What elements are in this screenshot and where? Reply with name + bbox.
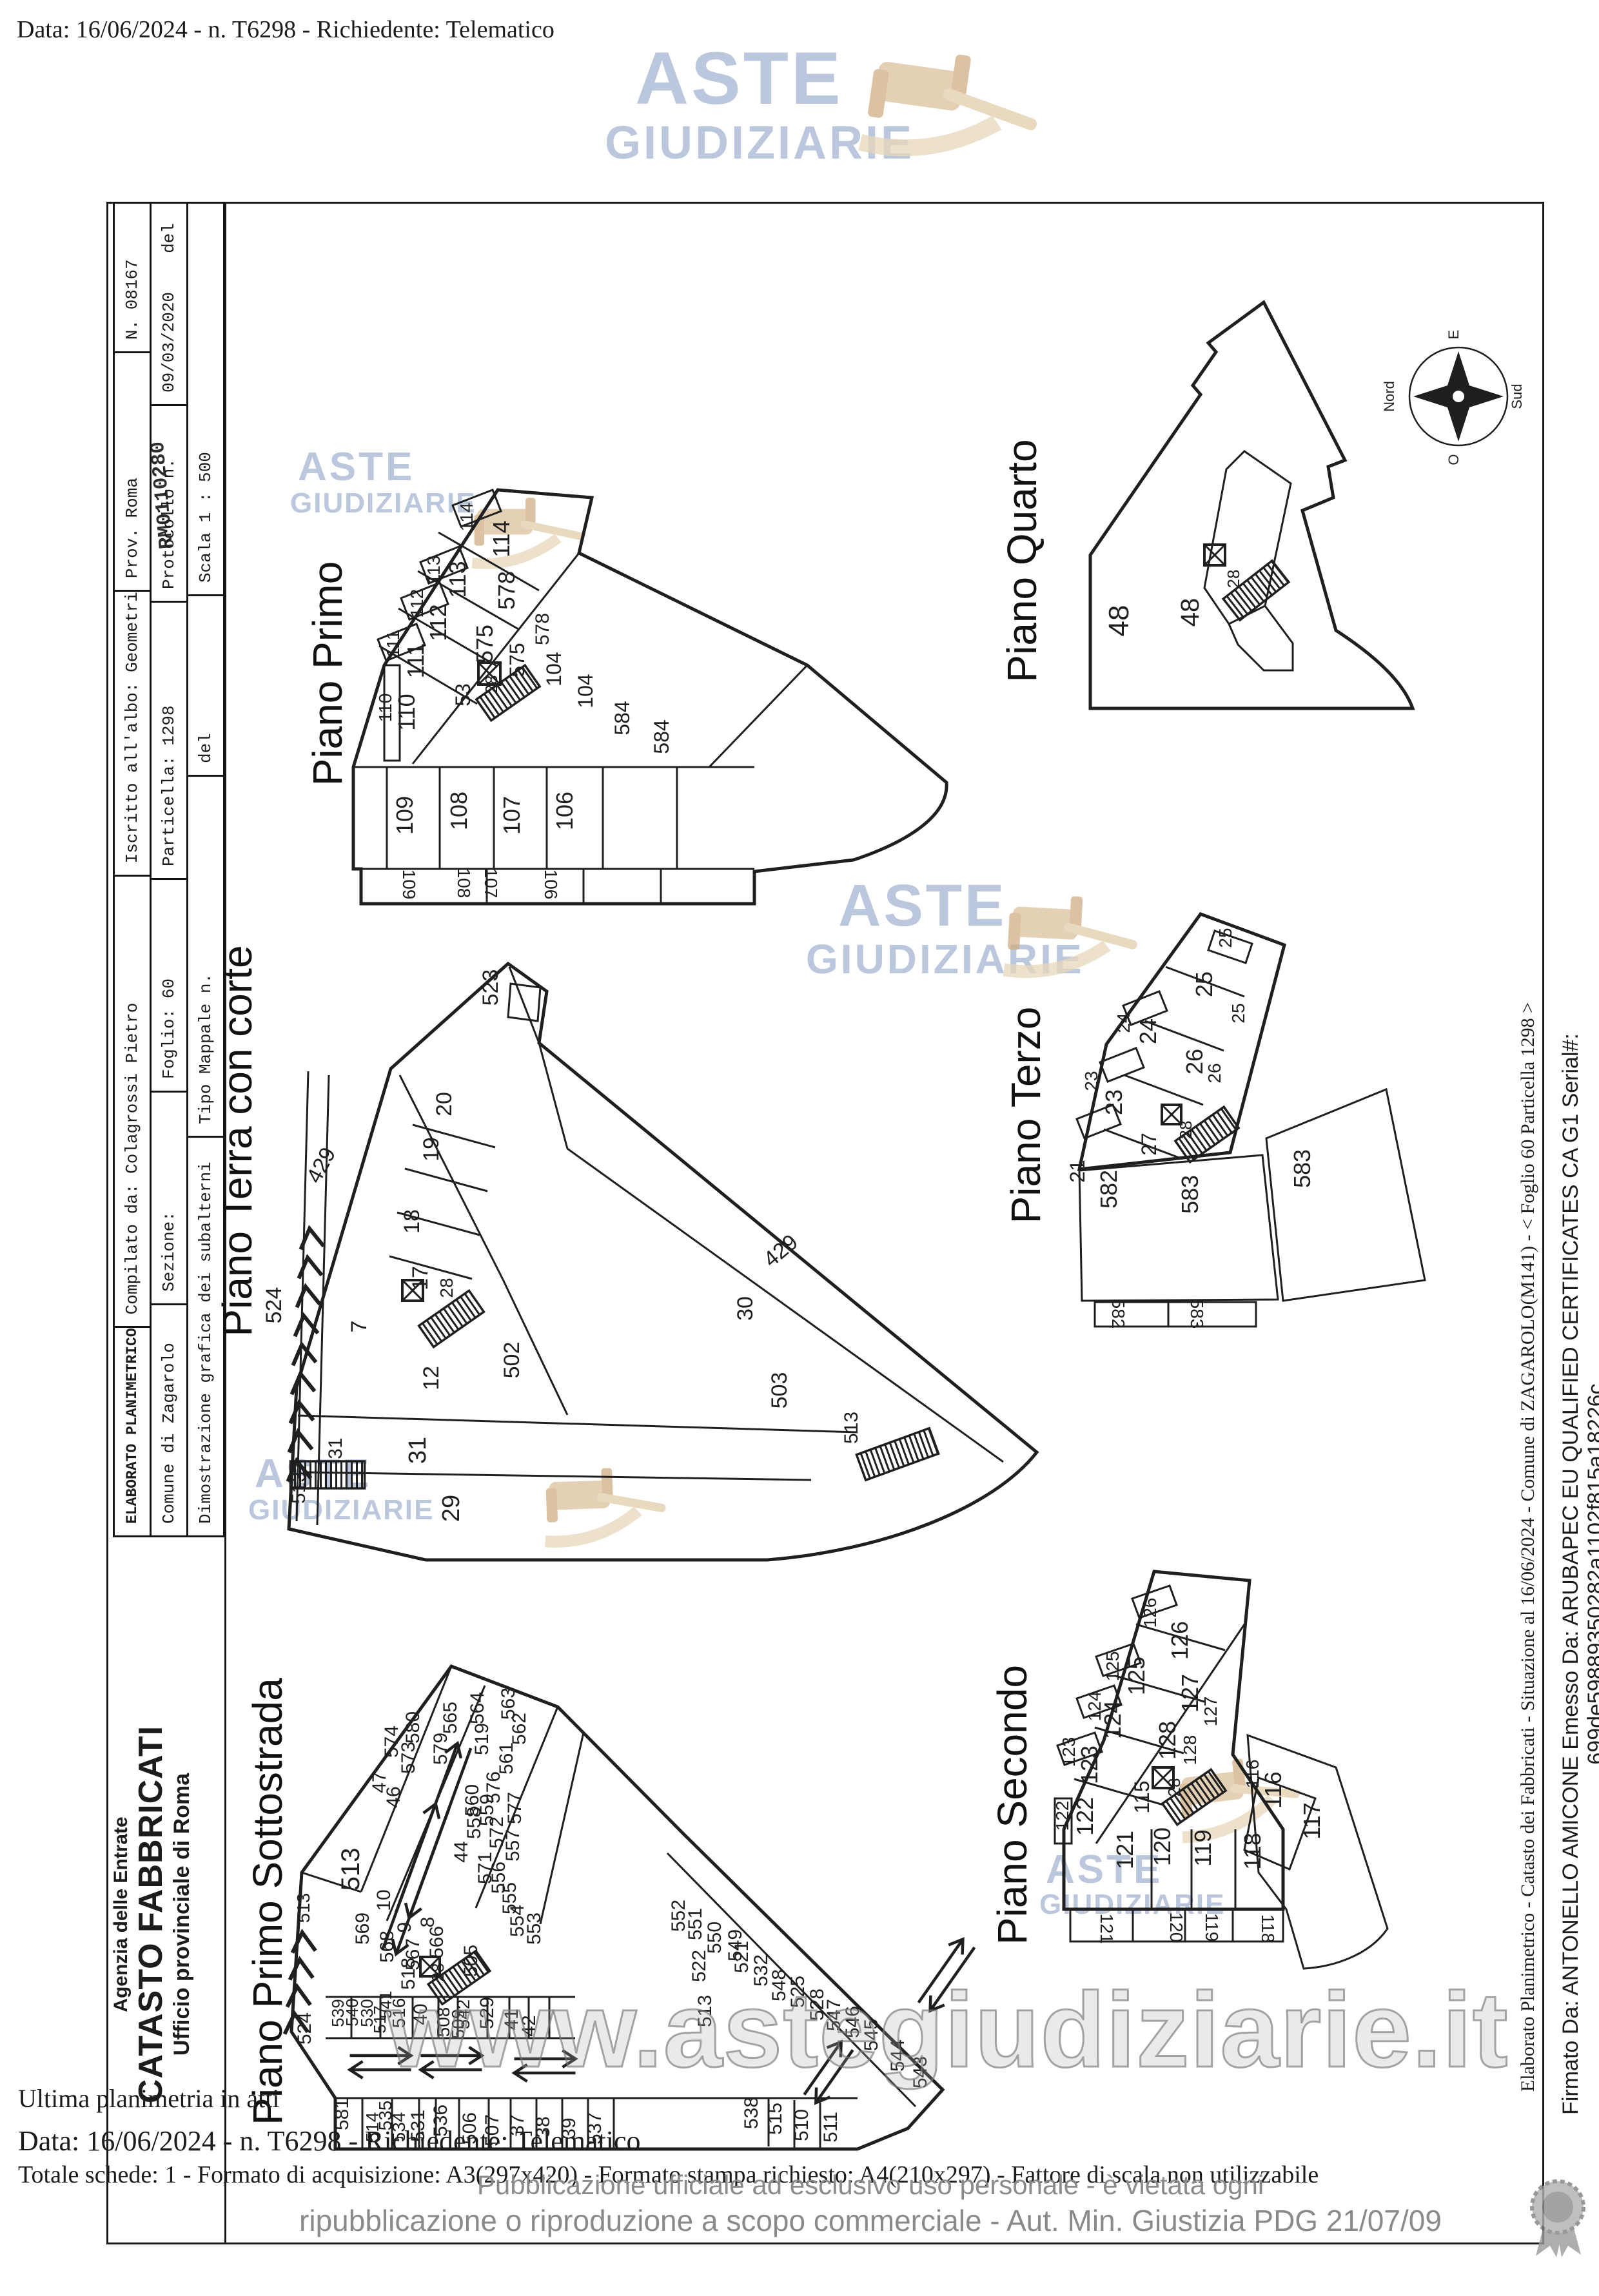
room-label: 513: [841, 1412, 862, 1444]
room-label: 128: [1180, 1735, 1200, 1766]
room-label: 23: [1081, 1071, 1101, 1091]
room-label: 113: [424, 556, 444, 585]
room-label: 23: [1101, 1089, 1127, 1115]
room-label: 28: [437, 1278, 456, 1298]
room-label: 564: [467, 1692, 488, 1724]
room-label: 111: [402, 643, 429, 679]
compass-label: Nord: [1381, 381, 1397, 412]
room-label: 551: [685, 1908, 706, 1940]
room-label: 127: [1201, 1697, 1221, 1727]
room-label: 17: [408, 1266, 433, 1290]
room-label: 111: [383, 630, 403, 658]
room-label: 513: [293, 1893, 313, 1923]
plan-title-piano-terzo: Piano Terzo: [1003, 1007, 1049, 1224]
room-label: 53: [451, 683, 475, 706]
room-label: 583: [1177, 1175, 1203, 1214]
room-label: 582: [1108, 1299, 1128, 1329]
room-label: 565: [440, 1702, 461, 1734]
room-label: 429: [302, 1143, 340, 1187]
room-label: 578: [532, 613, 553, 645]
room-label: 109: [391, 796, 418, 835]
room-label: 511: [820, 2112, 841, 2143]
room-label: 550: [704, 1921, 725, 1954]
room-label: 106: [551, 792, 578, 830]
room-label: 25: [1228, 1003, 1248, 1023]
room-label: 575: [471, 625, 498, 663]
room-label: 18: [400, 1209, 424, 1234]
room-label: 584: [650, 719, 673, 754]
room-label: 123: [1076, 1746, 1103, 1784]
compass-label: E: [1446, 330, 1462, 340]
floor-plans-canvas: 1141141131135781121125785755751111111041…: [0, 0, 1599, 2262]
room-label: 124: [1099, 1700, 1126, 1739]
room-label: 116: [1260, 1771, 1286, 1808]
room-label: 125: [1103, 1651, 1123, 1682]
plan-title-piano-quarto: Piano Quarto: [999, 439, 1045, 682]
room-label: 579: [430, 1733, 451, 1765]
room-label: 562: [509, 1713, 530, 1745]
room-label: 113: [444, 561, 471, 598]
room-label: 106: [541, 870, 561, 900]
side-signature-line: Firmato Da: ANTONELLO AMICONE Emesso Da:…: [1558, 852, 1591, 2296]
room-label: 28: [1176, 1121, 1195, 1140]
room-label: 27: [1137, 1133, 1161, 1156]
room-label: 558: [464, 1807, 485, 1839]
room-label: 44: [451, 1841, 472, 1862]
room-label: 121: [1112, 1831, 1138, 1869]
room-label: 20: [432, 1092, 456, 1116]
room-label: 119: [1190, 1829, 1216, 1866]
publication-notice-line1: Pubblicazione ufficiale ad esclusivo uso…: [193, 2170, 1547, 2201]
room-label: 573: [398, 1742, 419, 1774]
room-label: 553: [524, 1912, 545, 1945]
room-label: 584: [611, 701, 634, 735]
room-label: 25: [1191, 971, 1217, 997]
room-label: 122: [1052, 1801, 1072, 1831]
room-label: 122: [1072, 1797, 1098, 1836]
room-label: 515: [765, 2103, 786, 2135]
room-label: 117: [1299, 1802, 1325, 1839]
room-label: 24: [1135, 1018, 1161, 1044]
floorplan-piano-terzo: 252525242426262323272821582583583582583P…: [1003, 914, 1425, 1328]
room-label: 538: [741, 2097, 762, 2129]
room-label: 121: [1097, 1914, 1117, 1944]
room-label: 128: [1154, 1721, 1181, 1760]
room-label: 104: [574, 674, 597, 708]
room-label: 25: [1215, 928, 1235, 948]
room-label: 126: [1166, 1621, 1193, 1660]
scanned-cadastral-document: { "header": "Data: 16/06/2024 - n. T6298…: [0, 0, 1599, 2262]
room-label: 523: [478, 969, 503, 1006]
room-label: 503: [767, 1372, 792, 1409]
compass-label: O: [1446, 454, 1462, 465]
room-label: 107: [481, 868, 501, 899]
room-label: 114: [488, 520, 515, 557]
room-label: 28: [482, 676, 501, 694]
room-label: 429: [759, 1230, 803, 1272]
room-label: 575: [505, 643, 529, 677]
room-label: 519: [471, 1723, 493, 1755]
compass-label: Sud: [1509, 384, 1525, 409]
room-label: 502: [500, 1342, 524, 1379]
room-label: 30: [733, 1296, 758, 1321]
room-label: 582: [1095, 1170, 1122, 1209]
room-label: 110: [393, 694, 420, 730]
floorplan-piano-terra-con-corte: 5234294292019181728712502305035135133131…: [214, 945, 1037, 1560]
floorplan-piano-secondo: 1261261251251271271241241231231281281221…: [989, 1571, 1388, 1969]
plan-title-piano-secondo: Piano Secondo: [989, 1665, 1035, 1945]
room-label: 566: [426, 1926, 447, 1958]
room-label: 125: [1123, 1657, 1150, 1695]
publication-notice-line2: ripubblicazione o riproduzione a scopo c…: [193, 2203, 1547, 2238]
room-label: 118: [1239, 1833, 1266, 1869]
room-label: 120: [1149, 1827, 1175, 1866]
room-label: 28: [1224, 570, 1243, 589]
room-label: 31: [325, 1437, 346, 1459]
room-label: 569: [352, 1912, 373, 1945]
room-label: 7: [347, 1321, 371, 1333]
room-label: 48: [1176, 598, 1204, 627]
room-label: 583: [1289, 1149, 1315, 1188]
room-label: 26: [1204, 1063, 1224, 1083]
room-label: 26: [1181, 1049, 1208, 1075]
room-label: 118: [1258, 1914, 1278, 1943]
ultima-planimetria-line: Ultima planimetria in atti: [18, 2083, 279, 2114]
room-label: 126: [1140, 1598, 1160, 1628]
room-label: 112: [425, 604, 451, 641]
room-label: 521: [731, 1941, 752, 1973]
room-label: 21: [1066, 1160, 1089, 1183]
room-label: 108: [446, 792, 472, 830]
room-label: 114: [456, 503, 476, 532]
room-label: 31: [404, 1437, 431, 1464]
room-label: 115: [1130, 1780, 1153, 1813]
room-label: 112: [407, 589, 427, 618]
floorplan-piano-quarto: 484828Piano Quarto: [999, 302, 1413, 708]
room-label: 48: [1103, 605, 1135, 637]
room-label: 568: [377, 1931, 398, 1963]
room-label: 120: [1166, 1912, 1186, 1943]
room-label: 580: [402, 1711, 424, 1744]
compass-rose: NordESudO: [1381, 330, 1525, 465]
room-label: 107: [498, 796, 525, 835]
room-label: 557: [502, 1829, 524, 1862]
room-label: 513: [337, 1848, 365, 1891]
room-label: 12: [419, 1366, 444, 1390]
room-label: 109: [399, 870, 419, 900]
room-label: 108: [454, 868, 474, 899]
room-label: 46: [383, 1786, 404, 1807]
room-label: 524: [294, 2012, 315, 2045]
room-label: 578: [493, 571, 520, 610]
floorplan-piano-primo: 1141141131135781121125785755751111111041…: [304, 490, 947, 904]
signature-seal: [1516, 2174, 1599, 2260]
room-label: 583: [1187, 1299, 1207, 1329]
room-label: 24: [1113, 1013, 1133, 1033]
side-situation-line: Elaborato Planimetrico - Catasto dei Fab…: [1517, 825, 1549, 2269]
plan-title-piano-primo: Piano Primo: [304, 561, 351, 786]
room-label: 127: [1177, 1674, 1203, 1713]
plan-title-piano-primo-sottostrada: Piano Primo Sottostrada: [244, 1678, 291, 2125]
room-label: 119: [1202, 1913, 1222, 1942]
plan-title-piano-terra-con-corte: Piano Terra con corte: [214, 945, 260, 1336]
room-label: 10: [373, 1889, 395, 1911]
room-label: 8: [417, 1917, 438, 1928]
room-label: 19: [419, 1137, 444, 1162]
watermark-url: www.astegiudiziarie.it: [387, 1969, 1509, 2091]
room-label: 28: [1164, 1778, 1184, 1797]
room-label: 513: [288, 1472, 309, 1504]
room-label: 104: [542, 652, 565, 686]
room-label: 110: [375, 694, 395, 723]
room-label: 29: [438, 1495, 465, 1522]
data-richiedente-line: Data: 16/06/2024 - n. T6298 - Richiedent…: [18, 2125, 641, 2157]
room-label: 561: [496, 1742, 517, 1775]
room-label: 524: [262, 1287, 286, 1324]
room-label: 510: [791, 2109, 812, 2141]
